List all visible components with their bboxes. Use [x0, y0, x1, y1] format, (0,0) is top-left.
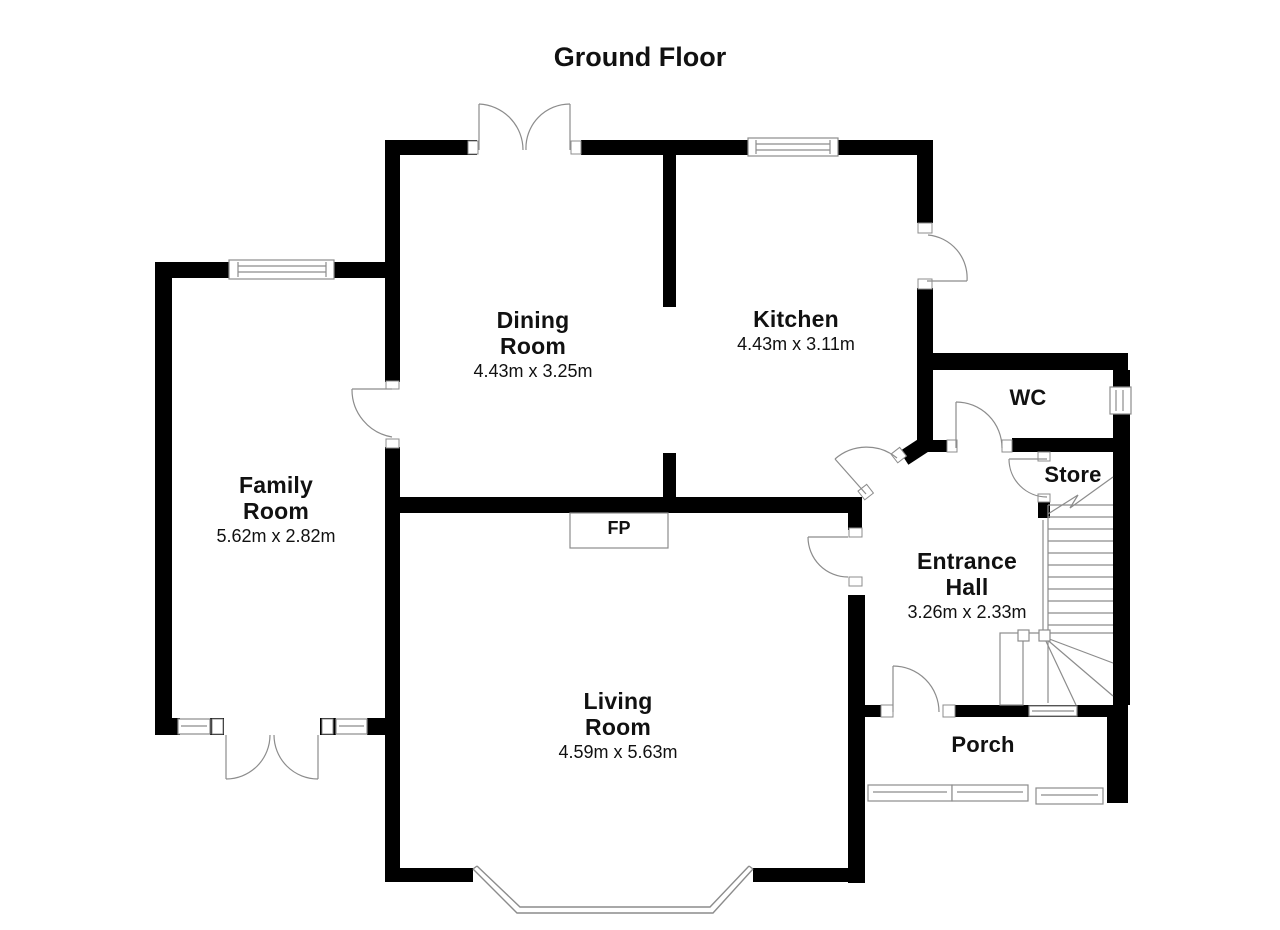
family-dining-door — [352, 389, 392, 437]
family-room-bottom-windows — [178, 719, 367, 734]
living-room-bay-window — [473, 866, 753, 913]
room-label-living: Living Room 4.59m x 5.63m — [558, 688, 677, 763]
room-dimensions: 4.59m x 5.63m — [558, 741, 677, 763]
room-name: Room — [473, 333, 592, 359]
room-name: Store — [1044, 462, 1101, 488]
room-name: Porch — [951, 732, 1014, 758]
room-label-kitchen: Kitchen 4.43m x 3.11m — [737, 306, 855, 355]
room-label-wc: WC — [1009, 385, 1046, 411]
fireplace-label: FP — [607, 518, 630, 539]
room-name: Kitchen — [737, 306, 855, 332]
room-label-entrance-hall: Entrance Hall 3.26m x 2.33m — [907, 548, 1026, 623]
room-name: WC — [1009, 385, 1046, 411]
dining-french-doors — [479, 104, 570, 150]
kitchen-window — [748, 138, 838, 156]
room-label-dining: Dining Room 4.43m x 3.25m — [473, 307, 592, 382]
room-dimensions: 5.62m x 2.82m — [216, 525, 335, 547]
hall-living-door — [808, 537, 848, 577]
room-name: Living — [558, 688, 677, 714]
floor-plan: Ground Floor Dining Room 4.43m x 3.25m K… — [0, 0, 1280, 930]
family-room-top-window — [229, 260, 334, 279]
room-label-porch: Porch — [951, 732, 1014, 758]
room-name: Room — [216, 498, 335, 524]
wc-door — [956, 402, 1002, 448]
porch-windows — [868, 785, 1103, 804]
wc-window — [1110, 387, 1131, 414]
room-label-store: Store — [1044, 462, 1101, 488]
room-name: Dining — [473, 307, 592, 333]
hall-bottom-window — [1029, 706, 1077, 716]
room-name: Entrance — [907, 548, 1026, 574]
room-dimensions: 4.43m x 3.11m — [737, 333, 855, 355]
room-dimensions: 4.43m x 3.25m — [473, 360, 592, 382]
store-door — [1009, 459, 1047, 497]
front-door — [893, 666, 939, 712]
kitchen-side-door — [927, 235, 967, 281]
room-name: Family — [216, 472, 335, 498]
room-name: Hall — [907, 574, 1026, 600]
page-title: Ground Floor — [554, 42, 726, 73]
room-label-family: Family Room 5.62m x 2.82m — [216, 472, 335, 547]
family-room-french-doors — [226, 735, 318, 779]
room-dimensions: 3.26m x 2.33m — [907, 601, 1026, 623]
room-name: Room — [558, 714, 677, 740]
